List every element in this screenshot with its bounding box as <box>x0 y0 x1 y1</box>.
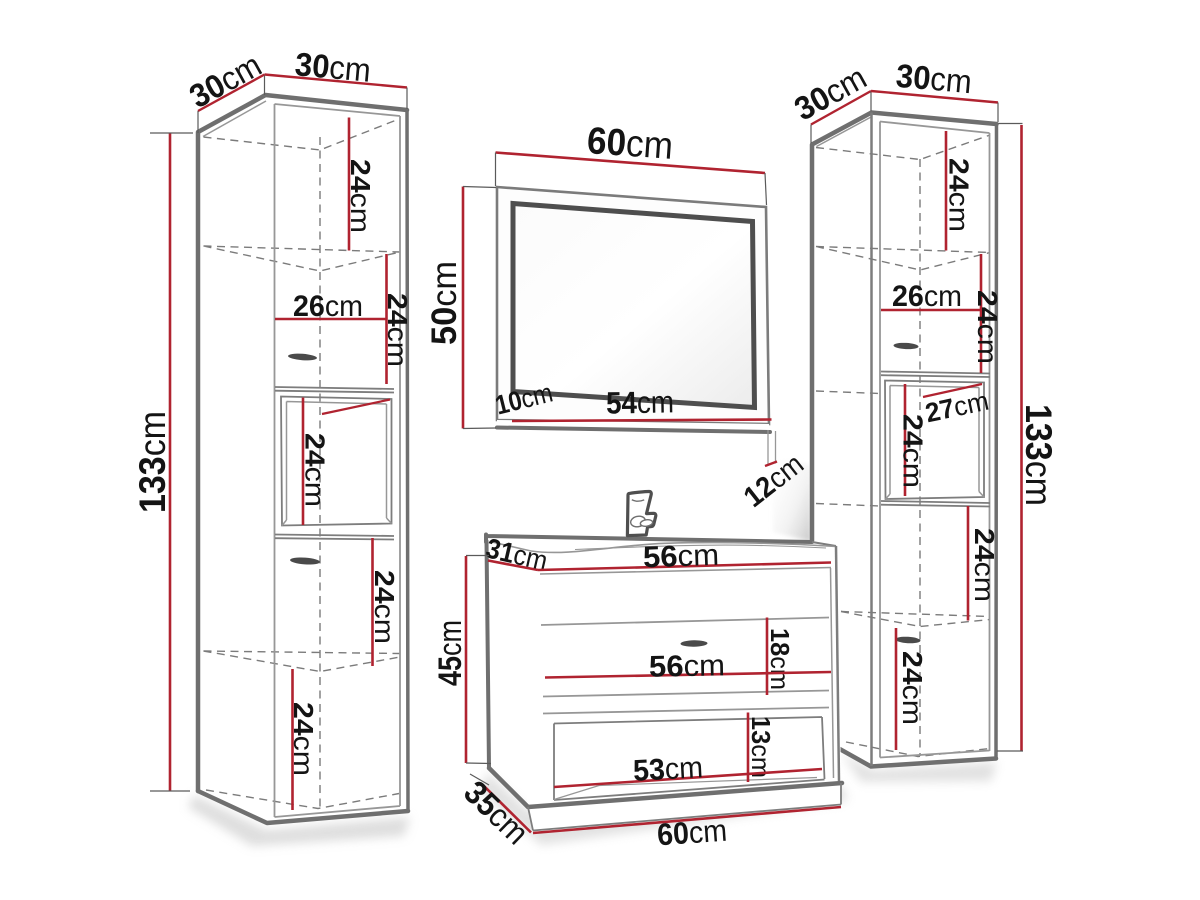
svg-text:54cm: 54cm <box>606 384 675 420</box>
svg-text:24cm: 24cm <box>370 570 401 644</box>
svg-text:26cm: 26cm <box>892 280 962 313</box>
svg-text:56cm: 56cm <box>649 649 726 683</box>
svg-text:24cm: 24cm <box>383 293 414 367</box>
svg-text:18cm: 18cm <box>765 628 795 690</box>
svg-text:60cm: 60cm <box>656 812 728 852</box>
svg-text:24cm: 24cm <box>944 158 975 232</box>
svg-text:133cm: 133cm <box>1019 404 1060 506</box>
svg-text:24cm: 24cm <box>289 702 320 776</box>
svg-text:24cm: 24cm <box>970 528 1001 602</box>
svg-text:133cm: 133cm <box>132 411 173 513</box>
svg-text:45cm: 45cm <box>432 620 468 686</box>
svg-text:56cm: 56cm <box>642 538 719 574</box>
svg-text:24cm: 24cm <box>898 651 929 725</box>
svg-text:30cm: 30cm <box>895 56 974 99</box>
svg-text:30cm: 30cm <box>294 45 373 88</box>
svg-text:50cm: 50cm <box>425 261 464 345</box>
svg-text:60cm: 60cm <box>586 120 675 168</box>
svg-text:24cm: 24cm <box>300 433 331 507</box>
svg-text:24cm: 24cm <box>973 290 1004 364</box>
svg-text:24cm: 24cm <box>346 159 377 233</box>
svg-text:13cm: 13cm <box>746 716 776 778</box>
svg-text:53cm: 53cm <box>632 751 704 788</box>
svg-text:26cm: 26cm <box>293 290 363 323</box>
svg-text:24cm: 24cm <box>898 414 929 488</box>
